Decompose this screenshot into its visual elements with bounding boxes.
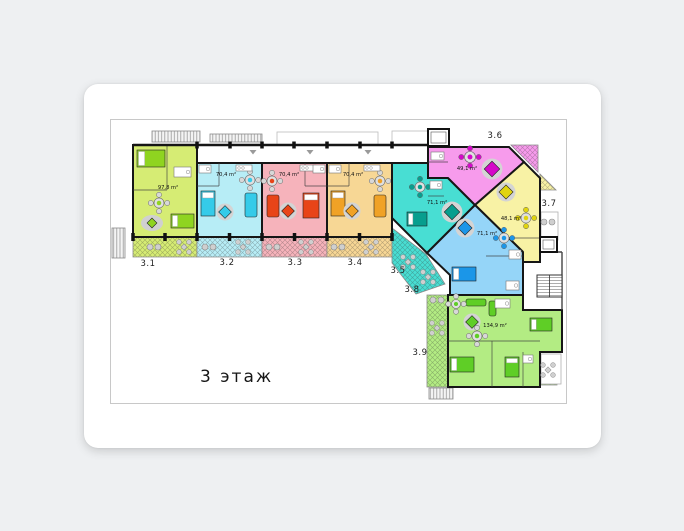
- bed-icon: [171, 214, 194, 228]
- apartment-area-label-3.6: 49,1 m²: [457, 166, 477, 172]
- bathroom-fixtures-icon: [495, 299, 510, 308]
- armchair-set-icon: [482, 159, 503, 180]
- wall-tick: [228, 233, 232, 241]
- armchair-set-icon: [343, 202, 360, 219]
- wall-tick: [163, 233, 167, 241]
- apartment-area-label-3.5: 71,1 m²: [427, 200, 447, 206]
- apartment-area-label-3.9: 134,9 m²: [483, 323, 507, 329]
- apartment-number-label-3.6: 3.6: [487, 131, 502, 141]
- armchair-set-icon: [497, 183, 516, 202]
- elevator-cab: [543, 240, 554, 249]
- entrance-stairs-icon: [112, 228, 125, 258]
- bed-icon: [137, 150, 165, 167]
- bathroom-fixtures-icon: [509, 250, 521, 259]
- kitchen-icon: [364, 165, 380, 171]
- bed-icon: [505, 357, 519, 377]
- armchair-set-icon: [456, 219, 475, 238]
- wall-tick: [260, 233, 264, 241]
- bathroom-fixtures-icon: [329, 165, 341, 173]
- wall-tick: [293, 233, 297, 241]
- bathroom-fixtures-icon: [431, 152, 444, 160]
- bathroom-fixtures-icon: [313, 165, 325, 173]
- floor-title: 3 этаж: [200, 367, 273, 387]
- sofa-icon: [267, 195, 279, 217]
- porch-icon: [429, 388, 453, 399]
- apartment-area-label-3.3: 70,4 m²: [279, 172, 299, 178]
- armchair-set-icon: [216, 203, 233, 220]
- wall-tick: [131, 233, 135, 241]
- wall-tick: [358, 233, 362, 241]
- wall-tick: [195, 233, 199, 241]
- bathroom-fixtures-icon: [523, 355, 533, 363]
- bathroom-fixtures-icon: [174, 167, 191, 177]
- bathroom-fixtures-icon: [199, 165, 211, 173]
- balcony-outline: [541, 354, 561, 384]
- wall-tick: [260, 142, 264, 149]
- balcony-outline: [541, 212, 558, 240]
- apartment-number-label-3.4: 3.4: [347, 258, 362, 268]
- apartment-number-label-3.2: 3.2: [219, 258, 234, 268]
- exterior-stairs-icon: [210, 134, 262, 142]
- bed-icon: [452, 267, 476, 281]
- bed-icon: [201, 191, 215, 216]
- apartment-number-label-3.9: 3.9: [412, 348, 427, 358]
- apartment-number-label-3.8: 3.8: [404, 285, 419, 295]
- wall-tick: [325, 233, 329, 241]
- armchair-set-icon: [279, 202, 296, 219]
- floorplan-drawing: 3.197,8 m²3.270,4 m²3.370,4 m²3.470,4 m²…: [0, 0, 684, 531]
- bathroom-fixtures-icon: [506, 281, 519, 290]
- apartment-area-label-3.8: 71,1 m²: [477, 231, 497, 237]
- wall-tick: [390, 142, 394, 149]
- wall-tick: [390, 233, 394, 241]
- wall-tick: [292, 142, 296, 149]
- wall-tick: [358, 142, 362, 149]
- wall-tick: [228, 142, 232, 149]
- apartment-area-label-3.4: 70,4 m²: [343, 172, 363, 178]
- canopy-outline: [392, 131, 428, 145]
- sofa-icon: [374, 195, 386, 217]
- bed-icon: [303, 193, 319, 218]
- balcony-hatch: [427, 295, 448, 387]
- sofa-icon: [245, 193, 257, 217]
- bathroom-fixtures-icon: [430, 181, 442, 189]
- apartment-number-label-3.5: 3.5: [390, 266, 405, 276]
- wall-tick: [325, 142, 329, 149]
- bed-icon: [407, 212, 427, 226]
- sofa-icon: [466, 299, 486, 306]
- apartment-number-label-3.3: 3.3: [287, 258, 302, 268]
- apartment-area-label-3.2: 70,4 m²: [216, 172, 236, 178]
- kitchen-icon: [236, 165, 252, 171]
- apartment-area-label-3.1: 97,8 m²: [158, 185, 178, 191]
- elevator-cab: [431, 132, 446, 143]
- apartment-number-label-3.1: 3.1: [140, 259, 155, 269]
- wall-tick: [195, 142, 199, 149]
- bed-icon: [530, 318, 552, 331]
- apartment-number-label-3.7: 3.7: [541, 199, 556, 209]
- exterior-stairs-icon: [152, 131, 200, 142]
- bed-icon: [331, 191, 345, 216]
- apartment-area-label-3.7: 48,1 m²: [501, 216, 521, 222]
- bed-icon: [450, 357, 474, 372]
